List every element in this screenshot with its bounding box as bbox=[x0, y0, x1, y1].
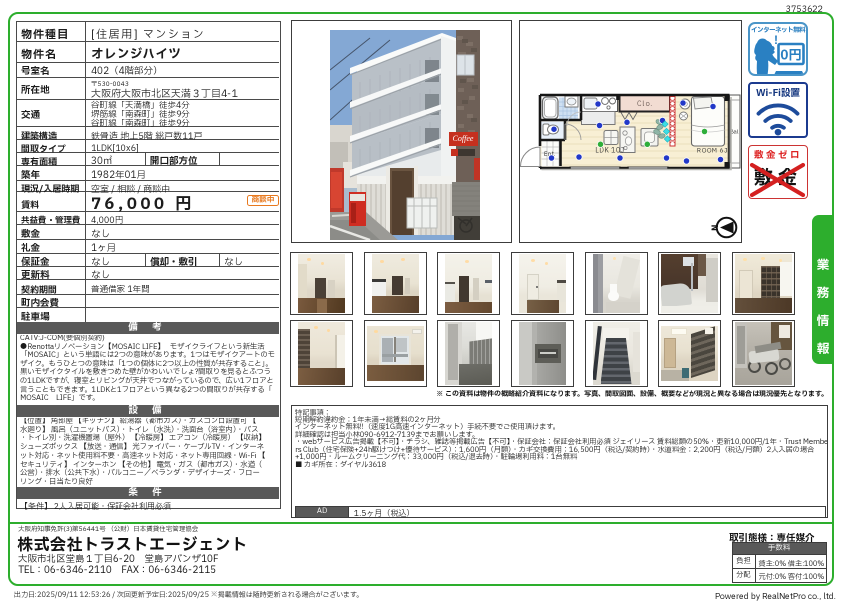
svg-text:Coffee: Coffee bbox=[453, 134, 474, 143]
svg-text:N: N bbox=[709, 224, 722, 231]
svg-text:ROOM 6J: ROOM 6J bbox=[697, 146, 728, 156]
svg-text:0円: 0円 bbox=[780, 46, 801, 66]
svg-text:Clo.: Clo. bbox=[637, 100, 654, 110]
